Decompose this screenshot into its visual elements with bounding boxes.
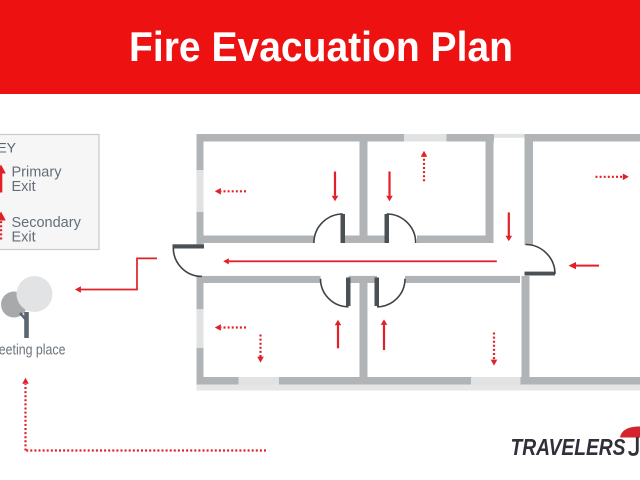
svg-text:KEY: KEY xyxy=(0,140,17,156)
svg-text:Exit: Exit xyxy=(12,230,36,246)
svg-text:Meeting place: Meeting place xyxy=(0,343,66,359)
svg-text:TRAVELERS: TRAVELERS xyxy=(511,434,627,460)
svg-text:Exit: Exit xyxy=(12,179,36,195)
svg-text:Fire Evacuation Plan: Fire Evacuation Plan xyxy=(129,23,513,70)
